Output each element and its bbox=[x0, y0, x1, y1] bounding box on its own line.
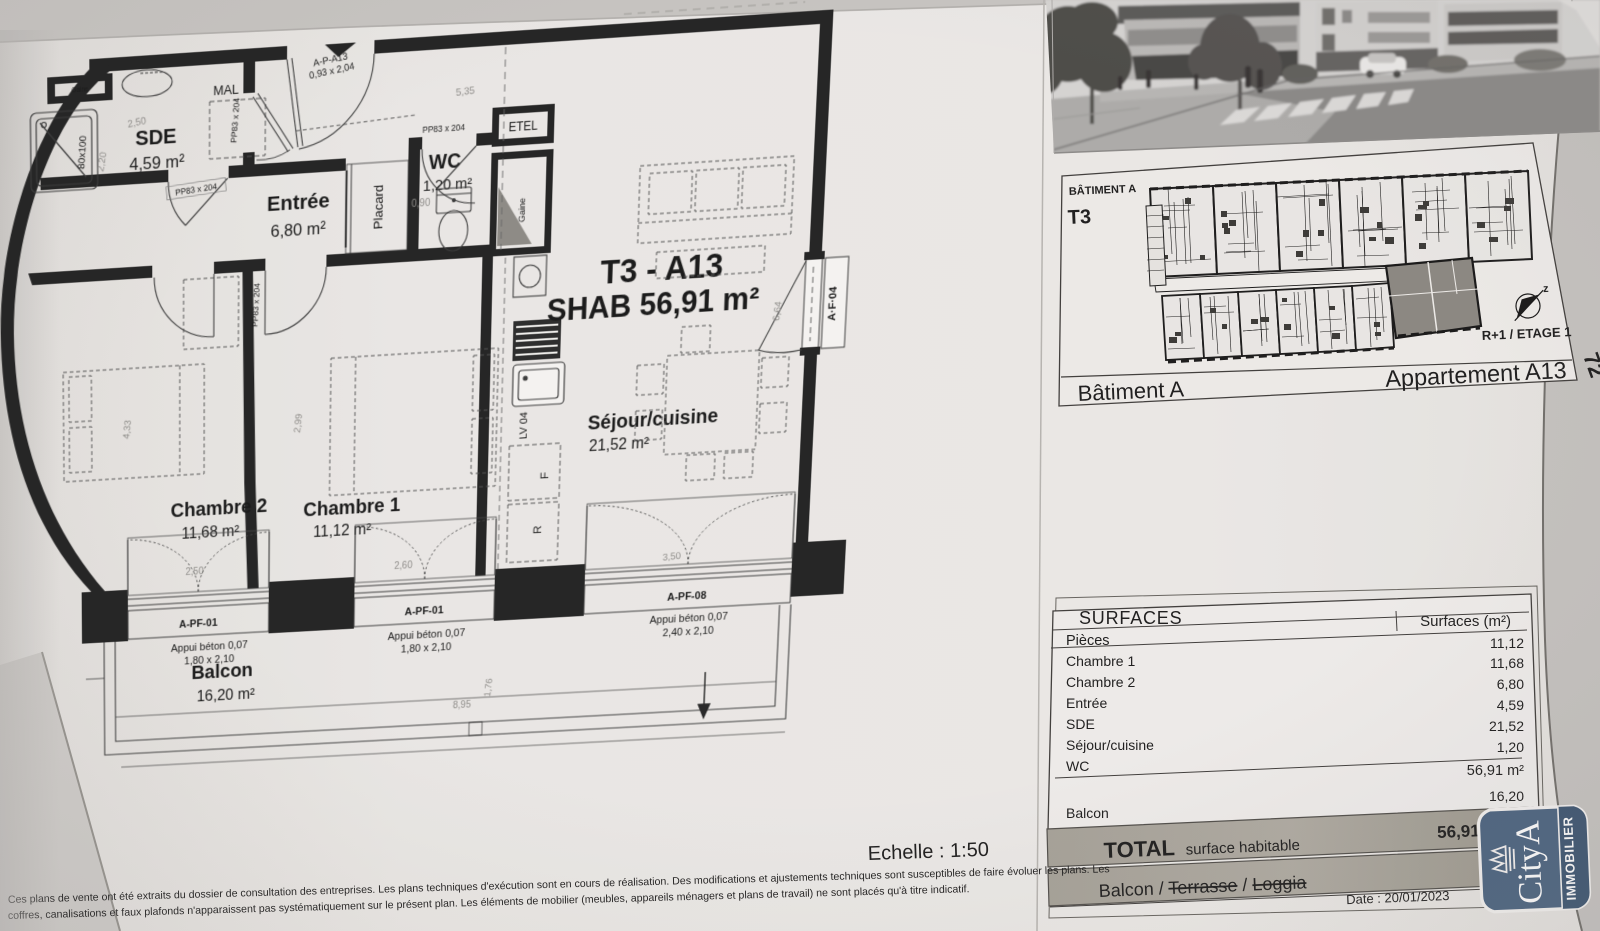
svg-text:1,76: 1,76 bbox=[483, 678, 496, 697]
svg-text:Gaine: Gaine bbox=[72, 86, 89, 94]
svg-text:ETEL: ETEL bbox=[508, 118, 538, 134]
svg-text:2,60: 2,60 bbox=[394, 560, 413, 572]
svg-text:Appui béton 0,07: Appui béton 0,07 bbox=[388, 627, 466, 643]
svg-text:Appui béton 0,07: Appui béton 0,07 bbox=[171, 639, 248, 655]
svg-text:A·F·04: A·F·04 bbox=[826, 285, 839, 321]
svg-text:PP83 x 204: PP83 x 204 bbox=[250, 283, 262, 327]
svg-text:A-PF-01: A-PF-01 bbox=[405, 605, 444, 619]
svg-text:8,95: 8,95 bbox=[453, 700, 472, 711]
svg-text:Balcon: Balcon bbox=[191, 660, 253, 684]
svg-text:16,20 m²: 16,20 m² bbox=[197, 685, 256, 705]
svg-text:Chambre 1: Chambre 1 bbox=[303, 494, 400, 521]
svg-text:2,40 x 2,10: 2,40 x 2,10 bbox=[662, 625, 714, 639]
svg-text:21,52 m²: 21,52 m² bbox=[589, 434, 650, 455]
svg-text:5,35: 5,35 bbox=[456, 85, 476, 99]
svg-text:2,20: 2,20 bbox=[96, 151, 110, 172]
svg-text:F: F bbox=[538, 472, 551, 480]
svg-text:PP83 x 204: PP83 x 204 bbox=[229, 98, 242, 143]
svg-text:4,59 m²: 4,59 m² bbox=[129, 151, 184, 174]
svg-text:A-PF-08: A-PF-08 bbox=[667, 590, 707, 604]
svg-text:1,80 x 2,10: 1,80 x 2,10 bbox=[401, 641, 452, 655]
svg-text:R: R bbox=[531, 525, 544, 534]
svg-text:6,64: 6,64 bbox=[771, 301, 784, 321]
svg-text:Gaine: Gaine bbox=[517, 198, 527, 223]
svg-text:WC: WC bbox=[429, 150, 462, 175]
svg-text:80x100: 80x100 bbox=[77, 135, 89, 169]
svg-text:Appui béton 0,07: Appui béton 0,07 bbox=[649, 611, 728, 627]
svg-text:6,80 m²: 6,80 m² bbox=[270, 219, 326, 242]
svg-text:0,90: 0,90 bbox=[411, 198, 430, 210]
svg-text:PP83 x 204: PP83 x 204 bbox=[422, 122, 465, 135]
svg-text:Séjour/cuisine: Séjour/cuisine bbox=[587, 405, 718, 434]
svg-text:11,12 m²: 11,12 m² bbox=[313, 520, 372, 541]
svg-text:A-PF-01: A-PF-01 bbox=[179, 617, 217, 631]
svg-text:MAL: MAL bbox=[213, 81, 239, 98]
svg-text:Entrée: Entrée bbox=[267, 189, 330, 216]
svg-text:4,33: 4,33 bbox=[122, 419, 134, 439]
svg-text:2,99: 2,99 bbox=[293, 413, 305, 433]
svg-text:SDE: SDE bbox=[135, 124, 176, 150]
svg-text:Placard: Placard bbox=[371, 184, 386, 230]
svg-text:3,50: 3,50 bbox=[663, 551, 682, 564]
svg-text:LV 04: LV 04 bbox=[518, 412, 530, 440]
svg-text:SHAB 56,91 m²: SHAB 56,91 m² bbox=[546, 280, 759, 328]
